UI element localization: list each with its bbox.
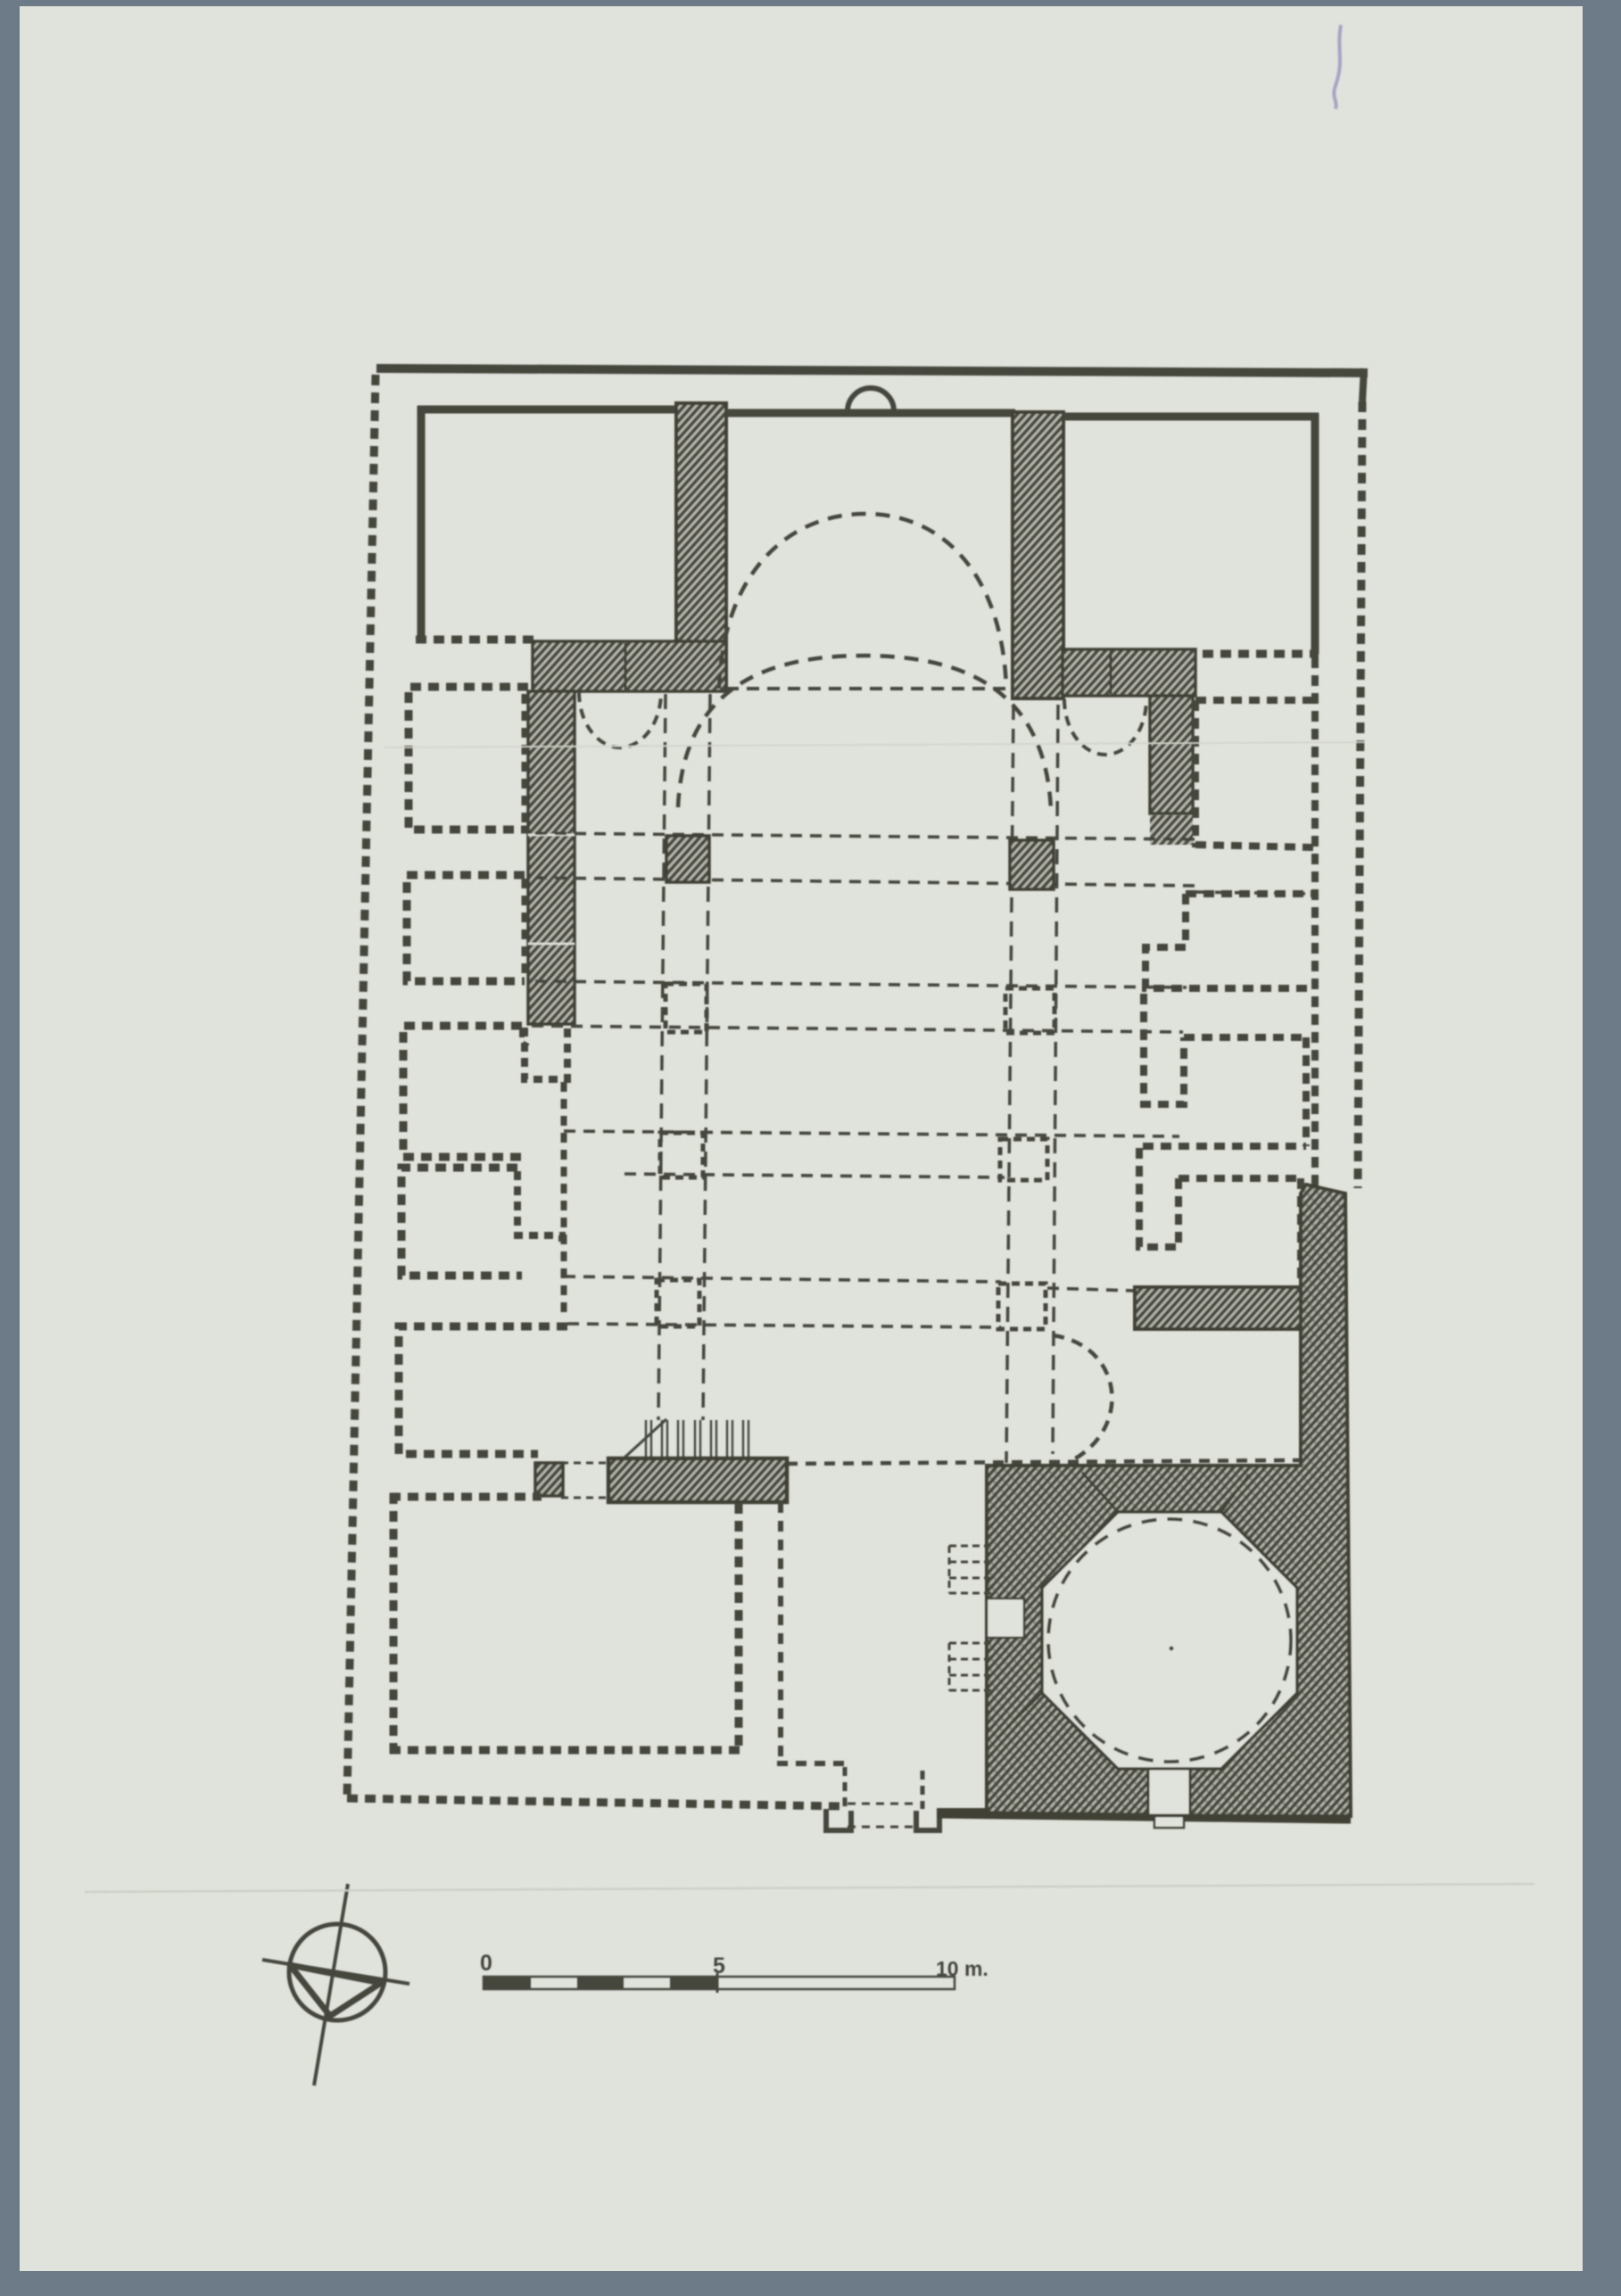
svg-text:0: 0: [480, 1951, 492, 1976]
svg-text:10 m.: 10 m.: [936, 1957, 988, 1980]
svg-text:5: 5: [713, 1953, 725, 1978]
